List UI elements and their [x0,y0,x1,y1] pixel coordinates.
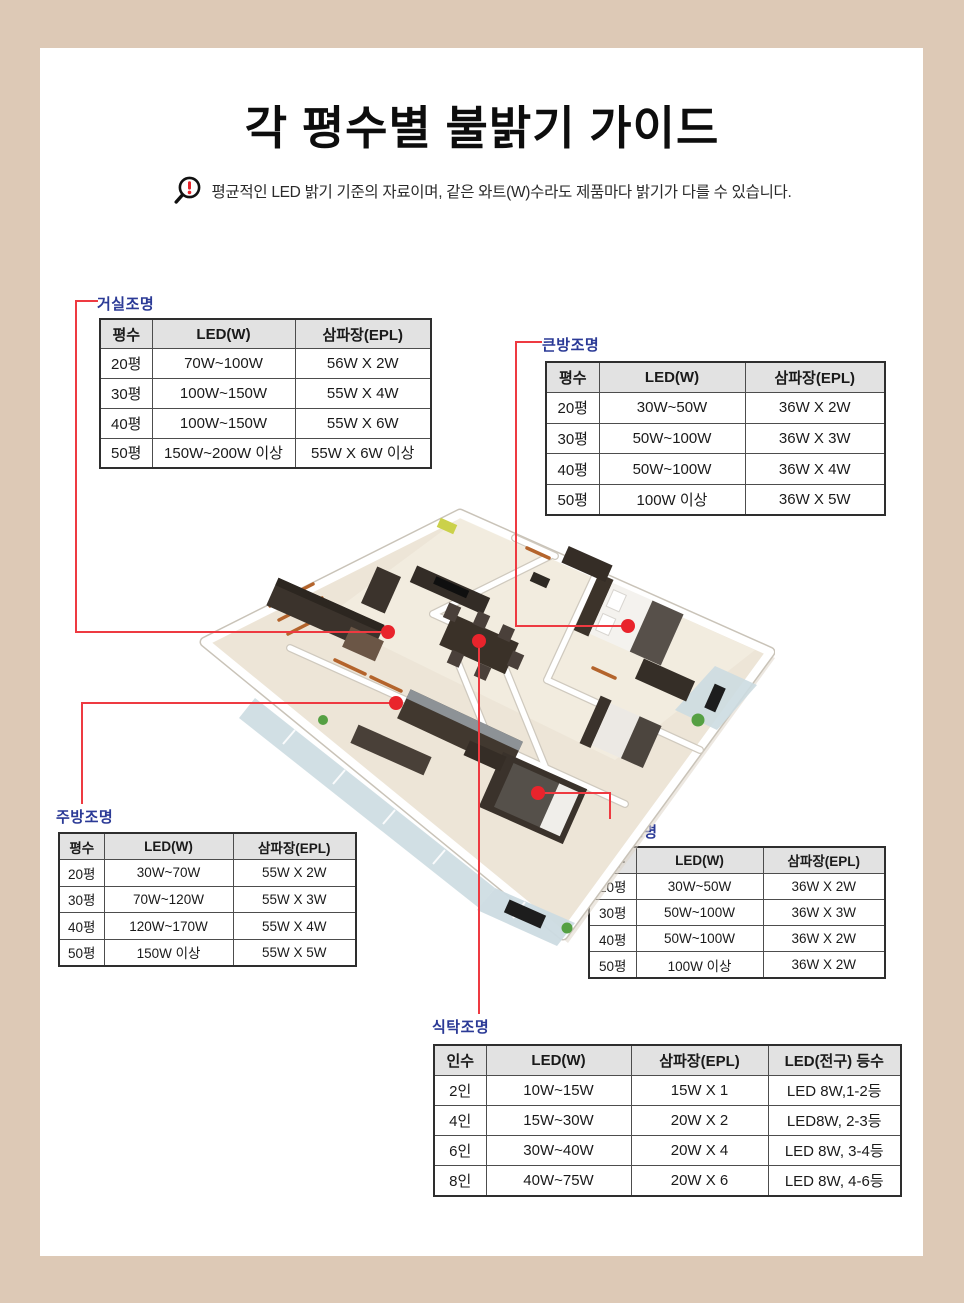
header-row: 평수LED(W)삼파장(EPL) [100,319,431,349]
table-cell: 30W~40W [486,1136,631,1166]
table-cell: 15W~30W [486,1105,631,1135]
table-cell: 36W X 4W [745,454,885,485]
table-cell: 40평 [546,454,599,485]
table-cell: 4인 [434,1105,486,1135]
table-row: 40평100W~150W55W X 6W [100,408,431,438]
kitchen-connector-line [81,702,397,704]
table-cell: 100W~150W [152,408,295,438]
table-cell: 36W X 3W [745,423,885,454]
table-cell: 20W X 4 [631,1136,768,1166]
table-cell: 36W X 2W [763,926,885,952]
dining-label: 식탁조명 [432,1016,489,1037]
table-cell: 36W X 2W [745,393,885,424]
table-cell: 30W~50W [599,393,745,424]
table-cell: 50평 [100,438,152,468]
column-header: 삼파장(EPL) [763,847,885,873]
table-row: 20평30W~50W36W X 2W [546,393,885,424]
column-header: 삼파장(EPL) [631,1045,768,1075]
bigroom-connector-line [515,625,629,627]
table-cell: 6인 [434,1136,486,1166]
column-header: 삼파장(EPL) [745,362,885,393]
column-header: 삼파장(EPL) [295,319,431,349]
table-cell: 150W~200W 이상 [152,438,295,468]
table-cell: 15W X 1 [631,1075,768,1105]
column-header: 인수 [434,1045,486,1075]
table-cell: 20평 [546,393,599,424]
table-row: 4인15W~30W20W X 2LED8W, 2-3등 [434,1105,901,1135]
table-cell: LED 8W,1-2등 [768,1075,901,1105]
table-cell: 8인 [434,1166,486,1196]
note-row: 평균적인 LED 밝기 기준의 자료이며, 같은 와트(W)수라도 제품마다 밝… [0,175,964,207]
table-cell: 20W X 6 [631,1166,768,1196]
table-cell: 10W~15W [486,1075,631,1105]
smallroom-connector-line [538,792,611,794]
column-header: 평수 [59,833,104,860]
table-cell: 55W X 6W [295,408,431,438]
header-row: 인수LED(W)삼파장(EPL)LED(전구) 등수 [434,1045,901,1075]
column-header: 평수 [546,362,599,393]
column-header: 평수 [100,319,152,349]
column-header: LED(W) [152,319,295,349]
table-cell: 55W X 6W 이상 [295,438,431,468]
living-table: 평수LED(W)삼파장(EPL)20평70W~100W56W X 2W30평10… [99,318,432,469]
table-cell: 2인 [434,1075,486,1105]
smallroom-dot [531,786,545,800]
table-cell: 20W X 2 [631,1105,768,1135]
kitchen-connector-line [81,702,83,804]
dining-dot [472,634,486,648]
header-row: 평수LED(W)삼파장(EPL) [546,362,885,393]
table-row: 40평50W~100W36W X 4W [546,454,885,485]
table-cell: 40평 [59,913,104,940]
table-row: 50평150W~200W 이상55W X 6W 이상 [100,438,431,468]
living-label: 거실조명 [97,293,154,314]
table-row: 30평50W~100W36W X 3W [546,423,885,454]
table-cell: LED8W, 2-3등 [768,1105,901,1135]
table-cell: 20평 [59,860,104,887]
table-cell: 36W X 2W [763,952,885,978]
note-text: 평균적인 LED 밝기 기준의 자료이며, 같은 와트(W)수라도 제품마다 밝… [211,180,791,202]
bigroom-connector-line [515,341,517,627]
table-row: 50평100W 이상36W X 2W [589,952,885,978]
table-cell: 56W X 2W [295,349,431,379]
living-connector-line [75,300,77,633]
table-cell: 36W X 3W [763,899,885,925]
magnifier-exclamation-icon [172,175,202,207]
table-cell: 70W~100W [152,349,295,379]
column-header: LED(W) [486,1045,631,1075]
column-header: LED(W) [599,362,745,393]
kitchen-dot [389,696,403,710]
page-title: 각 평수별 불밝기 가이드 [0,92,964,158]
table-row: 2인10W~15W15W X 1LED 8W,1-2등 [434,1075,901,1105]
table-cell: 40평 [100,408,152,438]
table-cell: 55W X 4W [295,379,431,409]
dining-table: 인수LED(W)삼파장(EPL)LED(전구) 등수2인10W~15W15W X… [433,1044,902,1197]
table-cell: 50W~100W [599,454,745,485]
table-row: 30평100W~150W55W X 4W [100,379,431,409]
table-cell: 50평 [59,939,104,966]
bigroom-dot [621,619,635,633]
bigroom-label: 큰방조명 [542,334,599,355]
table-cell: 40W~75W [486,1166,631,1196]
table-cell: 30평 [100,379,152,409]
living-dot [381,625,395,639]
table-cell: LED 8W, 3-4등 [768,1136,901,1166]
table-row: 20평70W~100W56W X 2W [100,349,431,379]
table-cell: 50W~100W [599,423,745,454]
bigroom-connector-line [515,341,542,343]
table-cell: 36W X 2W [763,873,885,899]
table-cell: LED 8W, 4-6등 [768,1166,901,1196]
table-cell: 100W~150W [152,379,295,409]
bigroom-table: 평수LED(W)삼파장(EPL)20평30W~50W36W X 2W30평50W… [545,361,886,516]
infographic-page: 각 평수별 불밝기 가이드 평균적인 LED 밝기 기준의 자료이며, 같은 와… [0,0,964,1303]
kitchen-label: 주방조명 [56,806,113,827]
floor-plan [195,498,775,948]
dining-connector-line [478,641,480,1014]
table-cell: 50평 [589,952,636,978]
table-row: 8인40W~75W20W X 6LED 8W, 4-6등 [434,1166,901,1196]
column-header: LED(전구) 등수 [768,1045,901,1075]
smallroom-connector-line [609,792,611,819]
table-cell: 100W 이상 [636,952,763,978]
living-connector-line [75,631,388,633]
table-row: 6인30W~40W20W X 4LED 8W, 3-4등 [434,1136,901,1166]
table-cell: 30평 [546,423,599,454]
living-connector-line [75,300,98,302]
table-cell: 20평 [100,349,152,379]
table-cell: 30평 [59,886,104,913]
